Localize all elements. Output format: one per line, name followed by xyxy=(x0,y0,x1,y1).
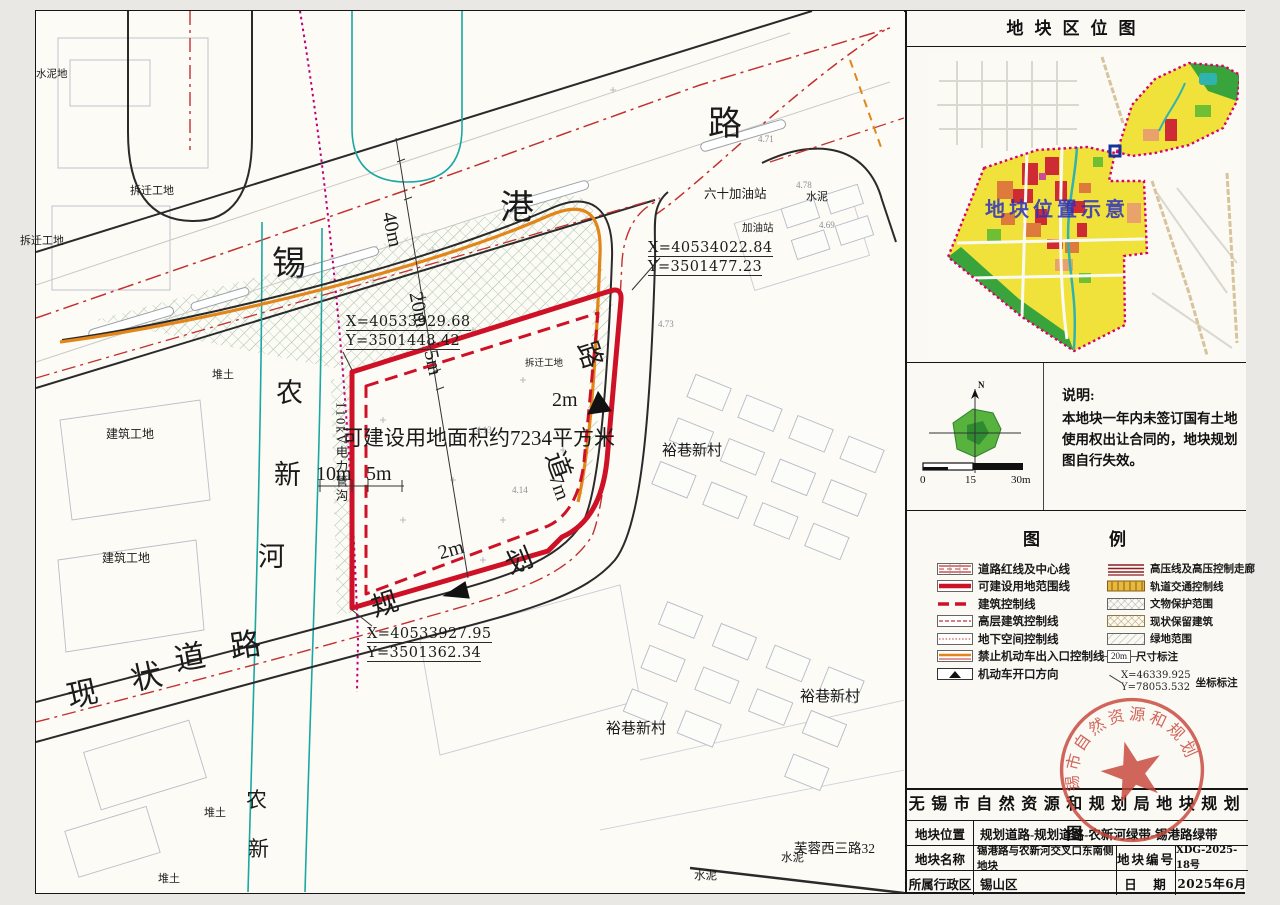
row-label: 地块名称 xyxy=(907,846,974,870)
legend-label: 绿地范围 xyxy=(1150,631,1192,646)
legend-swatch-heritage xyxy=(1107,597,1145,611)
legend-swatch-vehicle-opening xyxy=(937,667,973,681)
svg-text:0: 0 xyxy=(920,474,926,486)
legend-swatch-road-redline xyxy=(937,562,973,576)
legend-label: 尺寸标注 xyxy=(1136,649,1178,664)
legend-label: 现状保留建筑 xyxy=(1150,614,1213,629)
legend-swatch-building-control xyxy=(937,597,973,611)
legend-swatch-underground-control xyxy=(937,632,973,646)
note-body: 本地块一年内未签订国有土地使用权出让合同的，地块规划图自行失效。 xyxy=(1062,409,1238,472)
location-map-title: 地块区位图 xyxy=(907,11,1246,47)
official-seal: 无锡市自然资源和规划局 xyxy=(1044,682,1220,858)
row-label: 所属行政区 xyxy=(907,871,974,895)
row-value: 2025年6月 xyxy=(1176,871,1248,895)
legend-label: 可建设用地范围线 xyxy=(978,578,1070,594)
svg-text:30m: 30m xyxy=(1011,474,1031,486)
row-value: 锡山区 xyxy=(974,871,1116,895)
north-arrow-cell: N 0 15 30m xyxy=(907,363,1044,511)
legend-title: 图 例 xyxy=(929,525,1246,550)
svg-text:15: 15 xyxy=(965,474,977,486)
table-row: 所属行政区 锡山区 日 期 2025年6月 xyxy=(907,871,1248,895)
svg-text:N: N xyxy=(978,380,985,390)
location-hint-label: 地块位置示意 xyxy=(985,193,1129,222)
legend-label: 轨道交通控制线 xyxy=(1150,579,1224,594)
legend-right-column: 高压线及高压控制走廊 轨道交通控制线 文物保护范围 现状保留建筑 绿地范围 20… xyxy=(1107,560,1255,699)
scale-bar: 0 15 30m xyxy=(917,459,1037,495)
note-cell: 说明: 本地块一年内未签订国有土地使用权出让合同的，地块规划图自行失效。 xyxy=(1044,363,1248,511)
legend-swatch-retained-building xyxy=(1107,614,1145,628)
note-title: 说明: xyxy=(1062,385,1248,405)
legend-swatch-highrise-control xyxy=(937,614,973,628)
legend-left-column: 道路红线及中心线 可建设用地范围线 建筑控制线 高层建筑控制线 地下空间控制线 … xyxy=(937,560,1105,683)
legend-swatch-highvoltage xyxy=(1107,562,1145,576)
north-note-zone: N 0 15 30m 说明: 本地块一年内未签订国有土地使用权出让合同的，地块规… xyxy=(907,362,1246,511)
legend-label: 机动车开口方向 xyxy=(978,666,1059,682)
legend-swatch-no-access xyxy=(937,649,973,663)
legend-label: 文物保护范围 xyxy=(1150,596,1213,611)
legend-swatch-plot-line xyxy=(937,579,973,593)
legend-dim-sample: 20m xyxy=(1107,650,1131,663)
location-map-zone: 地块位置示意 xyxy=(907,47,1246,362)
legend-label: 高压线及高压控制走廊 xyxy=(1150,561,1255,576)
legend-label: 地下空间控制线 xyxy=(978,631,1059,647)
legend-swatch-rail-transit xyxy=(1107,579,1145,593)
right-panel: 地块区位图 xyxy=(905,11,1246,892)
legend-label: 道路红线及中心线 xyxy=(978,561,1070,577)
legend-label: 建筑控制线 xyxy=(978,596,1036,612)
legend-label: 高层建筑控制线 xyxy=(978,613,1059,629)
legend-label: 禁止机动车出入口控制线 xyxy=(978,648,1105,664)
row-label: 地块位置 xyxy=(907,821,974,845)
main-map xyxy=(36,11,904,893)
legend-swatch-greenbelt xyxy=(1107,632,1145,646)
row-label: 日 期 xyxy=(1116,871,1176,895)
plan-sheet: 锡 港 路 农 新 河 现 状 道 路 规 划 道 路 农 新 可建设用地面积约… xyxy=(0,0,1280,905)
